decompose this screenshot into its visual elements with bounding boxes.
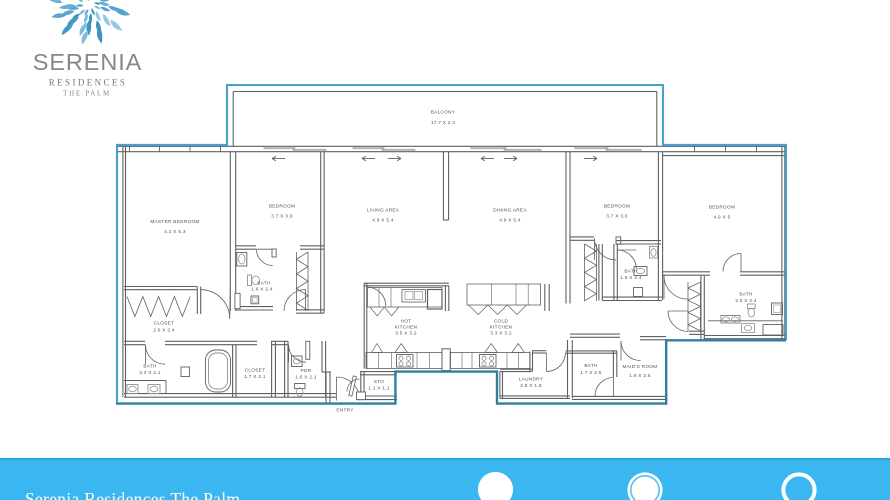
svg-text:BATH: BATH <box>257 281 270 286</box>
svg-text:4.2 X 5.3: 4.2 X 5.3 <box>164 229 186 234</box>
svg-text:LAUNDRY: LAUNDRY <box>519 377 544 382</box>
svg-text:1.8 X 2.5: 1.8 X 2.5 <box>629 373 651 378</box>
svg-text:1.6 X 2.4: 1.6 X 2.4 <box>620 275 642 280</box>
svg-text:PDR: PDR <box>301 368 312 373</box>
svg-text:4.9 X 5.4: 4.9 X 5.4 <box>372 218 394 223</box>
svg-text:CLOSET: CLOSET <box>245 368 266 373</box>
svg-text:3.7 X 3.6: 3.7 X 3.6 <box>606 214 628 219</box>
svg-text:KITCHEN: KITCHEN <box>395 325 418 330</box>
svg-text:CLOSET: CLOSET <box>154 321 175 326</box>
svg-text:4.3 X 2.1: 4.3 X 2.1 <box>139 370 161 375</box>
svg-text:4.9 X 5: 4.9 X 5 <box>714 215 731 220</box>
svg-text:COLD: COLD <box>494 319 509 324</box>
svg-text:17.7 X 2.3: 17.7 X 2.3 <box>431 120 455 125</box>
svg-text:BALCONY: BALCONY <box>431 110 456 115</box>
svg-text:1.7 X 2.5: 1.7 X 2.5 <box>580 370 602 375</box>
svg-text:HOT: HOT <box>401 319 412 324</box>
svg-text:MASTER BEDROOM: MASTER BEDROOM <box>150 219 199 224</box>
svg-text:KITCHEN: KITCHEN <box>490 325 513 330</box>
svg-text:3.7 X 3.9: 3.7 X 3.9 <box>271 214 293 219</box>
svg-text:Serenia Residences The Palm: Serenia Residences The Palm <box>25 489 240 500</box>
svg-text:BEDROOM: BEDROOM <box>709 205 735 210</box>
svg-text:LIVING AREA: LIVING AREA <box>367 208 400 213</box>
svg-text:BEDROOM: BEDROOM <box>269 204 295 209</box>
svg-text:RESIDENCES: RESIDENCES <box>49 78 128 88</box>
svg-text:BATH: BATH <box>584 363 597 368</box>
svg-text:THE PALM: THE PALM <box>63 89 111 97</box>
svg-text:ENTRY: ENTRY <box>336 408 354 413</box>
svg-text:1.1 X 1.1: 1.1 X 1.1 <box>368 386 390 391</box>
svg-text:3.5 X 3.2: 3.5 X 3.2 <box>395 331 417 336</box>
svg-text:STO: STO <box>374 379 385 384</box>
svg-text:BATH: BATH <box>624 269 637 274</box>
svg-text:DINING AREA: DINING AREA <box>493 208 527 213</box>
svg-text:2.6 X 2.4: 2.6 X 2.4 <box>153 328 175 333</box>
svg-text:2.8 X 1.8: 2.8 X 1.8 <box>520 383 542 388</box>
svg-text:MAID'S ROOM: MAID'S ROOM <box>623 364 658 369</box>
svg-text:1.7 X 2.1: 1.7 X 2.1 <box>244 374 266 379</box>
svg-text:3.3 X 3.2: 3.3 X 3.2 <box>490 331 512 336</box>
svg-text:SERENIA: SERENIA <box>33 49 142 75</box>
svg-text:BATH: BATH <box>739 292 752 297</box>
svg-text:1.6 X 2.1: 1.6 X 2.1 <box>295 375 317 380</box>
svg-text:1.6 X 2.4: 1.6 X 2.4 <box>251 287 273 292</box>
svg-text:4.9 X 5.4: 4.9 X 5.4 <box>499 218 521 223</box>
svg-text:BEDROOM: BEDROOM <box>604 204 630 209</box>
svg-text:BATH: BATH <box>143 364 156 369</box>
svg-text:2.6 X 2.4: 2.6 X 2.4 <box>735 298 757 303</box>
